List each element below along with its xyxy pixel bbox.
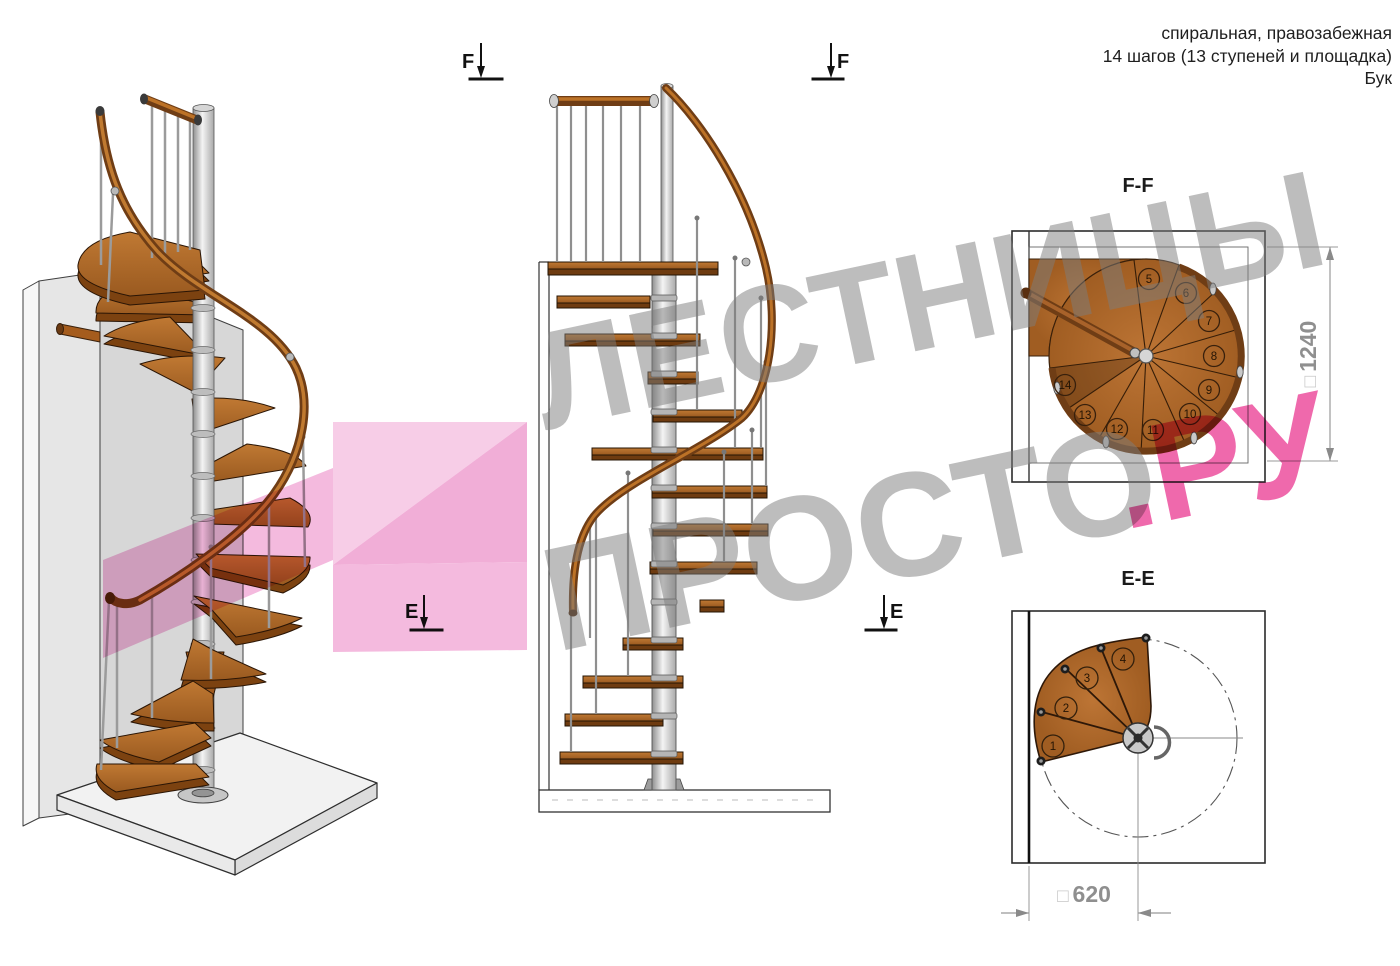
floor-elevation bbox=[539, 779, 830, 812]
dim-arrow-left-icon bbox=[1138, 909, 1151, 917]
title-line-type: спиральная, правозабежная bbox=[1103, 22, 1392, 45]
title-line-material: Бук bbox=[1103, 67, 1392, 90]
ee-step-3: 3 bbox=[1084, 673, 1090, 685]
drawing-sheet: спиральная, правозабежная 14 шагов (13 с… bbox=[0, 0, 1400, 961]
staircase-drawing: F F E E bbox=[0, 0, 1400, 961]
ee-plan-view: E-E bbox=[1001, 568, 1265, 921]
down-arrow-icon bbox=[880, 617, 888, 629]
ff-pole bbox=[1139, 349, 1153, 363]
marker-f-left-label: F bbox=[462, 51, 474, 73]
watermark-layer: ЛЕСТНИЦЫ ПРОСТО .РУ bbox=[103, 142, 1345, 684]
ee-dimension: □620 bbox=[1001, 866, 1171, 921]
ff-step-8: 8 bbox=[1211, 351, 1217, 363]
ee-dim-value: 620 bbox=[1073, 881, 1111, 907]
ee-dim-text: □620 bbox=[1057, 881, 1111, 907]
landing-rail-elevation bbox=[550, 95, 659, 108]
section-marker-f-left: F bbox=[462, 44, 502, 79]
ee-step-2: 2 bbox=[1063, 703, 1069, 715]
dim-arrow-right-icon bbox=[1016, 909, 1029, 917]
title-line-steps: 14 шагов (13 ступеней и площадка) bbox=[1103, 45, 1392, 68]
title-block: спиральная, правозабежная 14 шагов (13 с… bbox=[1103, 22, 1392, 90]
ee-title: E-E bbox=[1121, 568, 1154, 590]
ff-step-14: 14 bbox=[1059, 380, 1072, 392]
down-arrow-icon bbox=[477, 66, 485, 78]
ee-dim-square: □ bbox=[1057, 886, 1069, 907]
ee-step-1: 1 bbox=[1050, 741, 1056, 753]
down-arrow-icon bbox=[827, 66, 835, 78]
marker-f-right-label: F bbox=[837, 51, 849, 73]
ee-step-4: 4 bbox=[1120, 654, 1127, 666]
section-marker-f-right: F bbox=[813, 44, 849, 79]
